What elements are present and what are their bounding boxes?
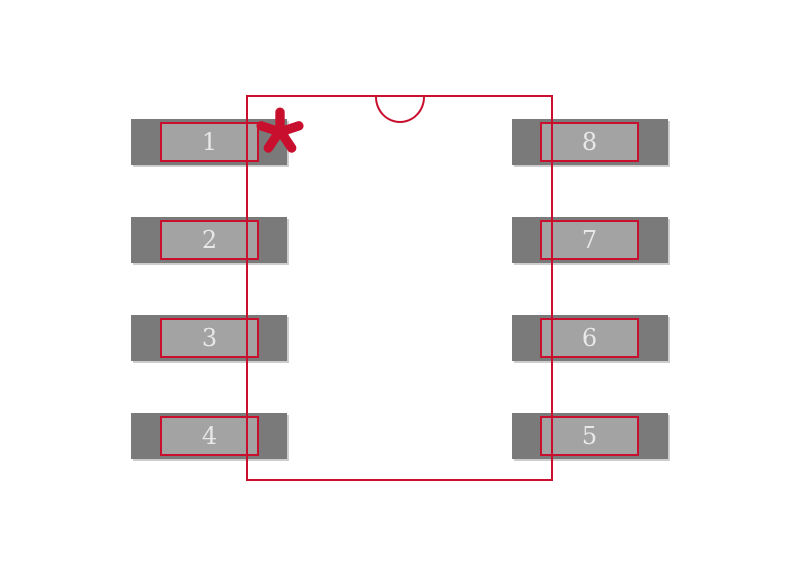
pin-1-number: 1: [202, 130, 217, 154]
pin-1-outline: 1: [160, 122, 259, 162]
pin-5-outline: 5: [540, 416, 639, 456]
pad-7: 7: [512, 217, 668, 263]
pin-8-outline: 8: [540, 122, 639, 162]
pin-3-outline: 3: [160, 318, 259, 358]
pin-8-number: 8: [582, 130, 597, 154]
pin-4-number: 4: [202, 424, 217, 448]
pin-7-number: 7: [582, 228, 597, 252]
pad-2: 2: [131, 217, 287, 263]
pad-1: 1: [131, 119, 287, 165]
pin-4-outline: 4: [160, 416, 259, 456]
pin1-end-notch-icon: [375, 97, 425, 123]
pad-3: 3: [131, 315, 287, 361]
footprint-diagram: 1 2 3 4 8 7 6 5: [0, 0, 800, 579]
pad-6: 6: [512, 315, 668, 361]
pad-4: 4: [131, 413, 287, 459]
pin-6-outline: 6: [540, 318, 639, 358]
pad-8: 8: [512, 119, 668, 165]
pin-7-outline: 7: [540, 220, 639, 260]
pin-2-number: 2: [202, 228, 217, 252]
pin-2-outline: 2: [160, 220, 259, 260]
pin-6-number: 6: [582, 326, 597, 350]
pad-5: 5: [512, 413, 668, 459]
pin-3-number: 3: [202, 326, 217, 350]
package-body-outline: [246, 95, 553, 481]
pin-5-number: 5: [582, 424, 597, 448]
